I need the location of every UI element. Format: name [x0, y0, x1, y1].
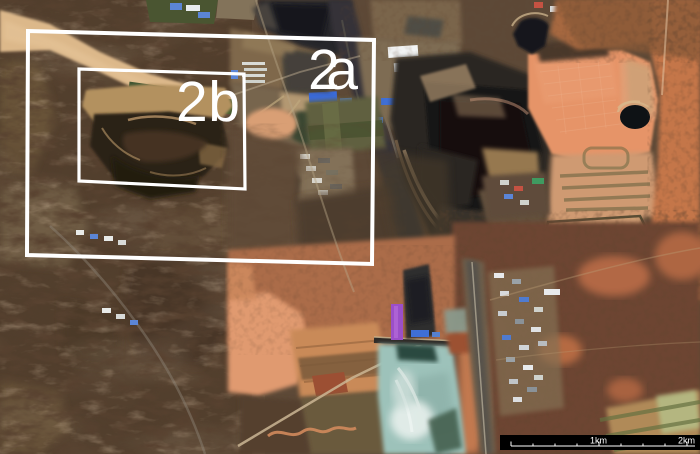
svg-text:2b: 2b [176, 70, 240, 134]
svg-text:1km: 1km [590, 436, 607, 446]
svg-text:2a: 2a [308, 38, 358, 102]
svg-text:2km: 2km [678, 436, 695, 446]
